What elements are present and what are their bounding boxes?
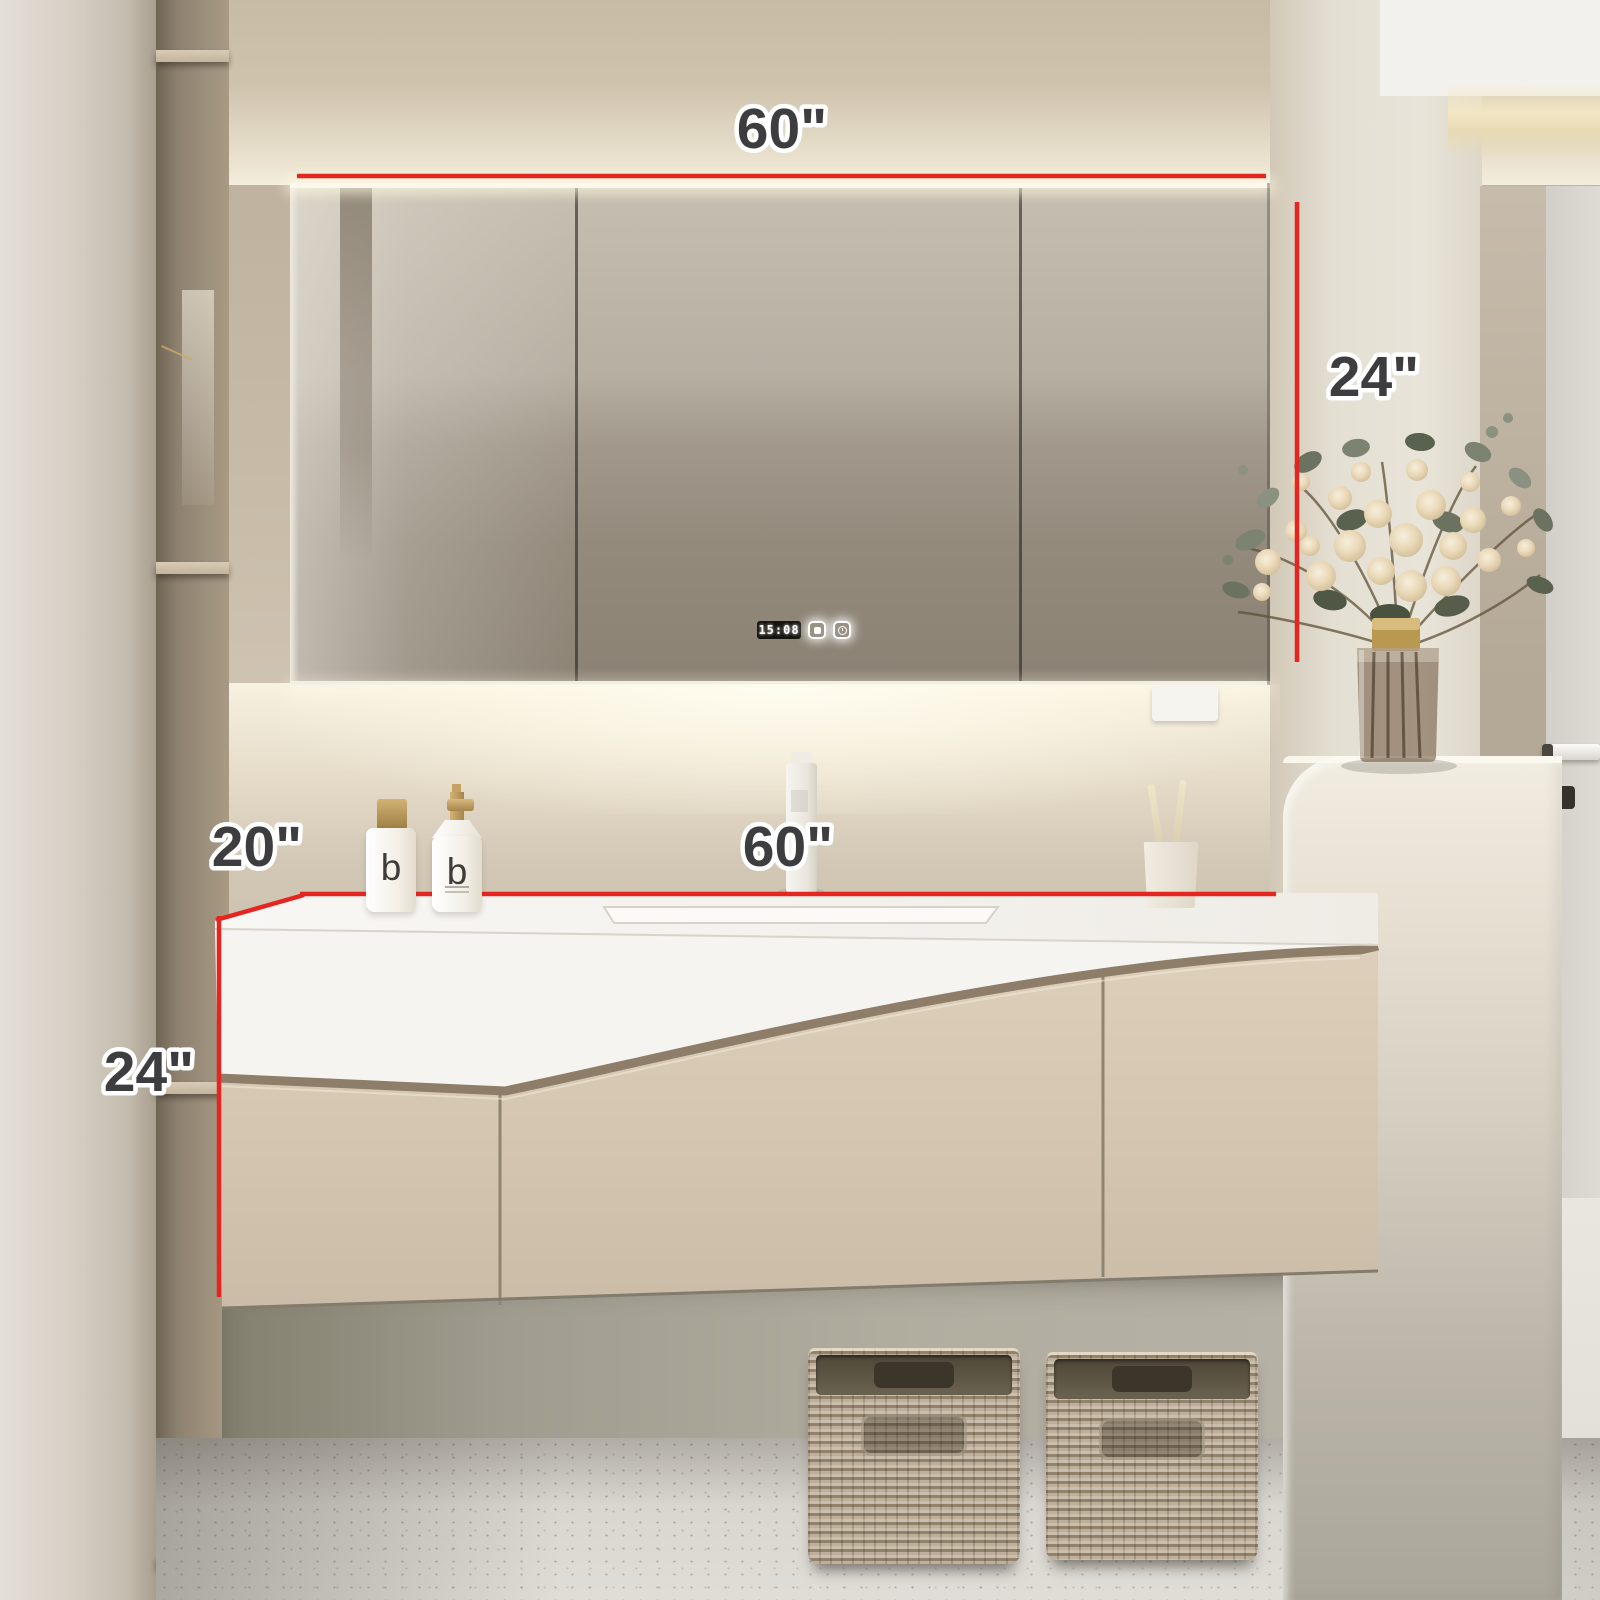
bottle-brand-letter: b [381,849,402,886]
pump-head [447,799,474,811]
counter-front-edge [215,929,1378,945]
basket-handle-icon [1112,1366,1192,1392]
niche-reflection [182,290,214,505]
basket-front-handle [1099,1418,1205,1460]
mirror-cabinet: 15:08 [290,183,1270,685]
clock-display: 15:08 [757,621,801,639]
mirror-door-seam [1019,183,1022,685]
shelf-board [156,562,229,574]
wicker-basket [1046,1352,1258,1560]
timer-icon [838,626,847,635]
defog-icon [814,627,821,634]
mirror-left-edge [290,183,299,685]
cove-light-glow [1448,84,1600,158]
timer-button [833,621,851,639]
counter-apron [215,928,1378,1089]
mirror-reflection-stripe [340,183,372,563]
product-photo: 15:08 [0,0,1600,1600]
cabinet-doors [218,949,1378,1308]
pump-bottle: b [432,836,482,912]
white-accessory-box [1152,686,1218,721]
partition-top-edge [1283,756,1562,763]
defog-button [808,621,826,639]
basket-handle-icon [874,1362,954,1388]
left-wall-pillar [0,0,156,1600]
basket-front-handle [861,1414,967,1456]
bottle-cap [377,799,407,830]
under-cabinet-glow [280,684,1280,814]
shelf-board [156,50,229,62]
toothbrush-cup [1142,842,1200,908]
mirror-door-seam [575,183,578,685]
led-strip-top [290,183,1270,188]
soap-bottle: b [366,828,416,912]
bottle-brand-letter: b [447,853,468,890]
open-shelf-niche [156,0,229,1600]
mirror-right-edge [1267,183,1270,685]
wicker-basket [808,1348,1020,1564]
groove-highlight [218,958,1360,1099]
mirror-control-panel: 15:08 [757,621,851,639]
curved-groove [218,946,1378,1091]
shelf-board [156,1082,229,1094]
bottle-label-lines [445,886,469,888]
ceiling [1380,0,1600,96]
partition-half-wall [1283,756,1562,1600]
